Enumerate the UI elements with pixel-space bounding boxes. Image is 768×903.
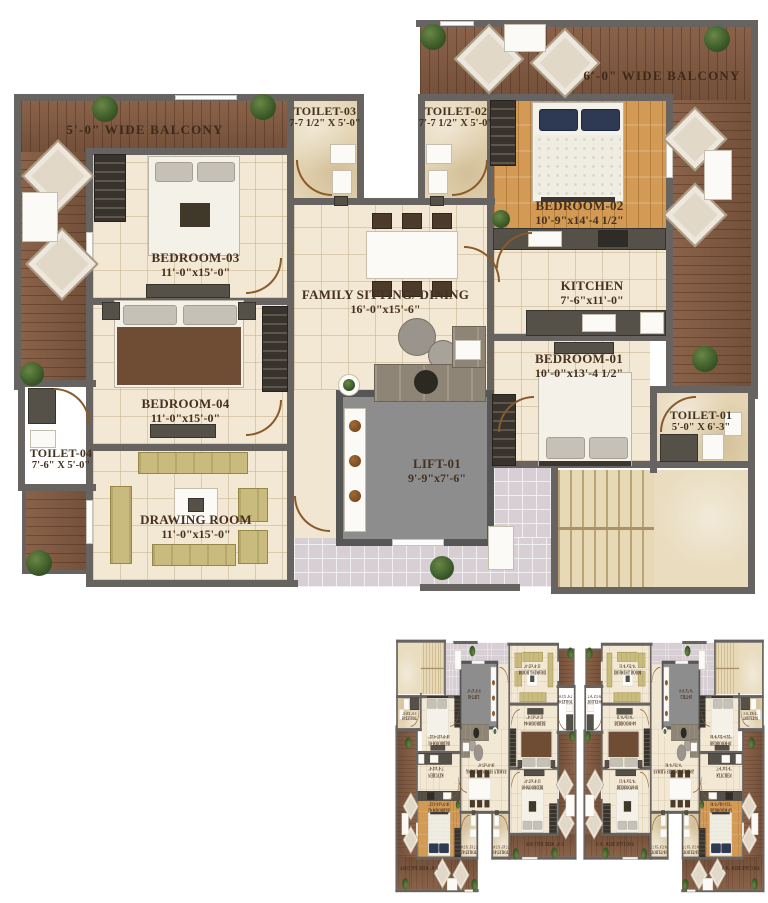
bed-bedroom03 [148,156,240,256]
headboard [711,696,733,698]
stair-mid-landing-line [421,668,444,669]
plant [551,847,557,858]
shower-tray [410,698,419,710]
balcony-rail [574,649,575,686]
wc-pan [428,170,448,194]
room-dims: 7-7 1/2" X 5'-0" [287,118,363,130]
table-decor [626,676,630,682]
wall [476,811,493,814]
wardrobe-bedroom03 [603,803,611,833]
room-name: TOILET-01 [398,715,420,721]
wardrobe-bedroom04 [510,729,516,767]
room-dims: 11'-0"x15'-0" [108,411,263,425]
pillow [123,305,177,325]
dining-table [468,778,490,799]
room-name: TOILET-02 [681,849,700,855]
room-label-family-dining: FAMILY SITTING/ DINING 16'-0"x15'-6" [653,762,696,775]
pillow [628,821,637,830]
room-label-drawing-room: DRAWING ROOM 11'-0"x15'-0" [513,663,551,676]
wall [601,643,653,646]
plant [471,879,477,890]
blanket [535,135,621,195]
room-name: DRAWING ROOM [609,669,647,676]
room-name: FAMILY SITTING/ DINING [653,768,696,775]
vase [665,711,668,716]
wall [492,94,672,101]
room-label-kitchen: KITCHEN 7'-6"x11'-0" [706,766,742,779]
wall [444,640,446,699]
room-dims: 16'-0"x15'-6" [298,302,473,316]
wall [396,640,446,643]
room-label-bedroom02: BEDROOM-02 10'-9"x14'-4 1/2" [702,801,740,814]
lift-door [392,539,444,546]
wall [18,484,96,491]
room-label-toilet03: TOILET-03 7-7 1/2" X 5'-0" [287,104,363,130]
vase [349,420,361,432]
balcony-table [566,795,575,817]
nightstand [551,760,555,768]
plant [663,729,666,734]
plant [641,848,647,859]
stair-mid-landing-line [558,527,654,530]
room-label-bedroom01: BEDROOM-01 10'-0"x13'-4 1/2" [420,734,458,747]
dining-chair [485,800,490,807]
room-dims: 11'-0"x15'-0" [118,265,273,279]
room-label-kitchen: KITCHEN 7'-6"x11'-0" [418,766,454,779]
room-name: KITCHEN [518,278,666,293]
room-dims: 7'-6"x11'-0" [706,766,742,772]
room-dims: 7'-6" X 5'-0" [14,460,108,472]
dining-chair [402,213,422,229]
pillow [537,758,550,767]
balcony-right-label: 6'-0" WIDE BALCONY [719,864,763,871]
wall [714,640,716,699]
sofa-drawing-top [138,452,248,474]
kitchen-sink [709,792,717,799]
room-dims: 7'-7 1/2" X 5'-0" [416,118,496,130]
room-dims: 7'-6" X 5'-0" [583,693,606,698]
bed-bedroom03 [522,788,544,832]
bath-fitting [430,196,444,206]
dining-chair [678,800,683,807]
wall [509,703,559,706]
washbasin [566,704,572,712]
plant [586,648,592,659]
plant [405,737,411,748]
room-name: TOILET-01 [740,715,762,721]
room-name: DRAWING ROOM [513,669,551,676]
kitchen-prep-sink [582,314,616,332]
room-label-bedroom02: BEDROOM-02 10'-9"x14'-4 1/2" [420,801,458,814]
plant [430,556,454,580]
dining-table [669,778,691,799]
room-label-toilet02: TOILET-02 7'-7 1/2" X 5'-0" [681,844,700,855]
pillow [581,109,620,131]
table-decor [188,498,204,512]
wardrobe-bedroom03 [549,803,557,833]
table-decor [530,676,534,682]
balcony-cabinet [751,813,758,835]
room-dims: 10'-0"x13'-4 1/2" [702,734,740,740]
bed-bedroom01 [711,696,734,737]
pillow [711,843,720,853]
window [687,890,695,892]
room-label-drawing-room: DRAWING ROOM 11'-0"x15'-0" [609,663,647,676]
window [465,890,473,892]
pillow [427,699,436,709]
wc-pan [702,434,724,460]
kitchen-prep-sink [430,755,438,763]
vase [492,696,495,701]
plant [494,729,497,734]
plant [567,648,573,659]
kitchen-sink [528,231,562,247]
blanket [117,327,241,385]
room-name: BEDROOM-04 [108,396,263,411]
key-plan-right-unit: 5'-0" WIDE BALCONY 6'-0" WIDE BALCONY TO… [580,637,767,901]
room-label-bedroom03: BEDROOM-03 11'-0"x15'-0" [118,250,273,279]
key-plan-left-unit: 5'-0" WIDE BALCONY 6'-0" WIDE BALCONY TO… [393,637,580,901]
blanket [608,732,638,758]
vase [492,711,495,716]
plant [685,646,691,657]
wc-pan [471,816,476,827]
room-label-bedroom01: BEDROOM-01 10'-0"x13'-4 1/2" [702,734,740,747]
pillow [533,821,542,830]
wall [453,641,477,644]
throw-cushion [414,370,438,394]
kitchen-hob [427,792,434,799]
dining-chair [685,800,690,807]
wardrobe-bedroom04 [262,306,288,392]
pillow [523,821,532,830]
bath-fitting [661,810,664,814]
room-dims: 5'-0" X 6'-3" [740,710,762,715]
shower-tray [741,698,750,710]
plant [420,24,446,50]
pillow [713,699,722,709]
wall [714,640,764,643]
refrigerator [736,754,742,764]
sofa-drawing-bottom [522,652,542,662]
side-table [455,340,481,360]
wall [551,587,755,594]
balcony-cabinet [704,150,732,200]
plant [20,362,44,386]
balcony-cabinet [402,813,409,835]
room-dims: 7'-6"x11'-0" [418,766,454,772]
balcony-table [504,24,546,52]
room-label-family-dining: FAMILY SITTING/ DINING 16'-0"x15'-6" [465,762,508,775]
throw-cushion [473,728,479,739]
room-name: TOILET-03 [650,849,668,855]
dining-chair [470,800,475,807]
plant [402,878,408,889]
balcony-table [22,192,58,242]
wall [751,20,758,399]
bed-bedroom02 [709,812,731,856]
nightstand [518,760,522,768]
balcony-left-label: 5'-0" WIDE BALCONY [524,840,565,847]
door-arc-toilet04 [54,388,90,424]
wall [420,693,422,731]
room-name: TOILET-02 [416,104,496,118]
room-dims: 9'-9"x7'-6" [668,688,704,694]
room-dims: 7-7 1/2" X 5'-0" [650,844,668,849]
plant [343,379,355,391]
pillow [721,843,730,853]
room-label-bedroom01: BEDROOM-01 10'-0"x13'-4 1/2" [500,351,658,380]
room-name: FAMILY SITTING/ DINING [465,768,508,775]
room-name: TOILET-01 [656,408,746,422]
nightstand [238,302,256,320]
room-dims: 7'-6" X 5'-0" [554,693,577,698]
wall [18,380,25,491]
plant [692,346,718,372]
pillow [610,758,623,767]
wc-pan [404,699,409,710]
room-dims: 11'-0"x15'-0" [118,527,274,541]
room-label-toilet01: TOILET-01 5'-0" X 6'-3" [398,710,420,721]
wall [14,94,21,390]
headboard [426,696,448,698]
room-name: KITCHEN [706,772,742,779]
room-name: TOILET-04 [583,699,606,705]
wc-pan [332,170,352,194]
wall [700,857,744,860]
pillow [546,437,585,459]
pillow [539,109,578,131]
balcony-table [703,878,713,890]
room-name: LIFT-01 [456,694,492,701]
wall [509,833,559,836]
throw-cushion [681,728,687,739]
room-dims: 10'-0"x13'-4 1/2" [420,734,458,740]
plant [513,848,519,859]
plant [682,879,688,890]
room-dims: 10'-9"x14'-4 1/2" [502,213,657,227]
room-label-toilet02: TOILET-02 7'-7 1/2" X 5'-0" [459,844,478,855]
room-label-bedroom04: BEDROOM-04 11'-0"x15'-0" [108,396,263,425]
room-label-toilet03: TOILET-03 7-7 1/2" X 5'-0" [492,844,510,855]
room-label-toilet01: TOILET-01 5'-0" X 6'-3" [656,408,746,434]
kitchen-prep-sink [722,755,730,763]
wall [491,811,510,814]
bath-fitting [472,810,475,814]
room-label-bedroom02: BEDROOM-02 10'-9"x14'-4 1/2" [502,198,657,227]
wall [650,811,669,814]
wardrobe-bedroom04 [644,729,650,767]
room-dims: 11'-0"x15'-0" [606,714,644,720]
room-name: BEDROOM-03 [118,250,273,265]
nightstand [638,760,642,768]
bed-bedroom02 [428,812,450,856]
room-label-lift: LIFT-01 9'-9"x7'-6" [456,688,492,701]
wall [601,703,651,706]
room-dims: 11'-0"x15'-0" [516,714,554,720]
balcony-right-label: 6'-0" WIDE BALCONY [572,68,752,84]
refrigerator [418,754,424,764]
room-name: LIFT-01 [363,456,511,471]
wall [584,685,603,688]
plant [704,26,730,52]
wall [748,392,755,594]
room-name: TOILET-02 [459,849,478,855]
pillow [197,162,235,182]
stair-landing [398,643,421,694]
room-dims: 10'-9"x14'-4 1/2" [702,801,740,807]
room-name: BEDROOM-01 [500,351,658,366]
room-label-bedroom03: BEDROOM-03 11'-0"x15'-0" [609,778,647,791]
room-dims: 7'-7 1/2" X 5'-0" [459,844,478,849]
room-dims: 7'-6"x11'-0" [518,293,666,307]
shower-tray [28,388,56,424]
key-plan: 5'-0" WIDE BALCONY 6'-0" WIDE BALCONY TO… [393,637,767,901]
tv-unit-bedroom03 [524,770,544,776]
room-name: TOILET-03 [492,849,510,855]
shower-tray [566,714,573,730]
bed-bedroom01 [426,696,449,737]
bath-fitting [334,196,348,206]
room-dims: 9'-9"x7'-6" [363,471,511,485]
wall [682,641,706,644]
bed-bedroom04 [521,730,553,769]
bed-bedroom03 [616,788,638,832]
washbasin [426,144,452,164]
door-mat [699,650,705,669]
room-label-toilet02: TOILET-02 7'-7 1/2" X 5'-0" [416,104,496,130]
room-name: TOILET-03 [287,104,363,118]
washbasin [587,704,593,712]
wall [287,198,364,205]
sofa-drawing-top [614,692,641,702]
window [522,857,537,859]
dining-chair [477,800,482,807]
lift-door [675,661,688,664]
room-label-bedroom04: BEDROOM-04 11'-0"x15'-0" [516,714,554,727]
plant [250,94,276,120]
wall [86,444,293,451]
bed-runner [180,203,210,227]
wall [420,584,520,591]
sofa-drawing-bottom [617,652,637,662]
wall [650,857,669,860]
window [557,662,559,681]
kitchen-hob [726,792,733,799]
headboard [539,461,631,466]
room-label-toilet03: TOILET-03 7-7 1/2" X 5'-0" [650,844,668,855]
room-label-kitchen: KITCHEN 7'-6"x11'-0" [518,278,666,307]
pillow [589,437,628,459]
plant [602,847,608,858]
room-label-lift: LIFT-01 9'-9"x7'-6" [363,456,511,485]
room-name: BEDROOM-03 [513,784,551,791]
room-label-bedroom03: BEDROOM-03 11'-0"x15'-0" [513,778,551,791]
wall [762,640,764,729]
wall [763,725,765,892]
balcony-right-label: 6'-0" WIDE BALCONY [397,864,441,871]
bed-runner [529,801,536,812]
washbasin [660,829,666,838]
bed-bedroom04 [608,730,640,769]
pillow [155,162,193,182]
room-label-toilet04: TOILET-04 7'-6" X 5'-0" [14,446,108,472]
room-name: BEDROOM-04 [516,720,554,727]
wall [86,580,298,587]
plant [469,646,475,657]
pillow [429,843,438,853]
room-dims: 7-7 1/2" X 5'-0" [492,844,510,849]
wall [574,685,576,734]
room-label-toilet01: TOILET-01 5'-0" X 6'-3" [740,710,762,721]
main-unit-plan: 5'-0" WIDE BALCONY 6'-0" WIDE BALCONY TO… [0,0,768,600]
room-dims: 5'-0" X 6'-3" [398,710,420,715]
pillow [183,305,237,325]
stair-mid-landing-line [716,668,739,669]
room-label-toilet04: TOILET-04 7'-6" X 5'-0" [554,693,577,704]
vase [665,680,668,685]
tv-unit-bedroom03 [146,284,230,298]
side-table [463,743,469,752]
plant [569,731,575,742]
nightstand [605,760,609,768]
balcony-left-label: 5'-0" WIDE BALCONY [60,122,230,138]
blanket [710,815,731,841]
room-label-toilet04: TOILET-04 7'-6" X 5'-0" [583,693,606,704]
dining-chair [671,800,676,807]
wall [491,857,510,860]
room-label-lift: LIFT-01 9'-9"x7'-6" [668,688,704,701]
side-table [691,743,697,752]
plant [748,737,754,748]
shower-tray [660,434,698,462]
pillow [618,821,627,830]
vase [349,455,361,467]
door-mat [455,650,461,669]
pillow [522,758,535,767]
window [175,95,237,100]
wall [507,643,559,646]
wc-pan [661,816,666,827]
floor-plan-canvas: 5'-0" WIDE BALCONY 6'-0" WIDE BALCONY TO… [0,0,768,903]
wall [601,833,651,836]
room-dims: 5'-0" X 6'-3" [656,422,746,434]
wall [357,198,425,205]
window [440,21,474,26]
wall [551,461,558,594]
bath-fitting [685,810,688,814]
lift-door [472,661,485,664]
window [601,662,603,681]
room-name: TOILET-04 [14,446,108,460]
pillow [439,843,448,853]
pillow [438,699,447,709]
window [86,500,93,544]
wall [418,94,498,101]
pillow [625,758,638,767]
plant [585,731,591,742]
washbasin [470,829,476,838]
room-label-family-dining: FAMILY SITTING/ DINING 16'-0"x15'-6" [298,287,473,316]
bed-bedroom02 [532,102,624,202]
room-name: LIFT-01 [668,694,704,701]
dining-chair [432,213,452,229]
washbasin [330,144,356,164]
wall [416,857,460,860]
room-label-drawing-room: DRAWING ROOM 11'-0"x15'-0" [118,512,274,541]
stair-landing [739,643,762,694]
wall [575,729,577,859]
